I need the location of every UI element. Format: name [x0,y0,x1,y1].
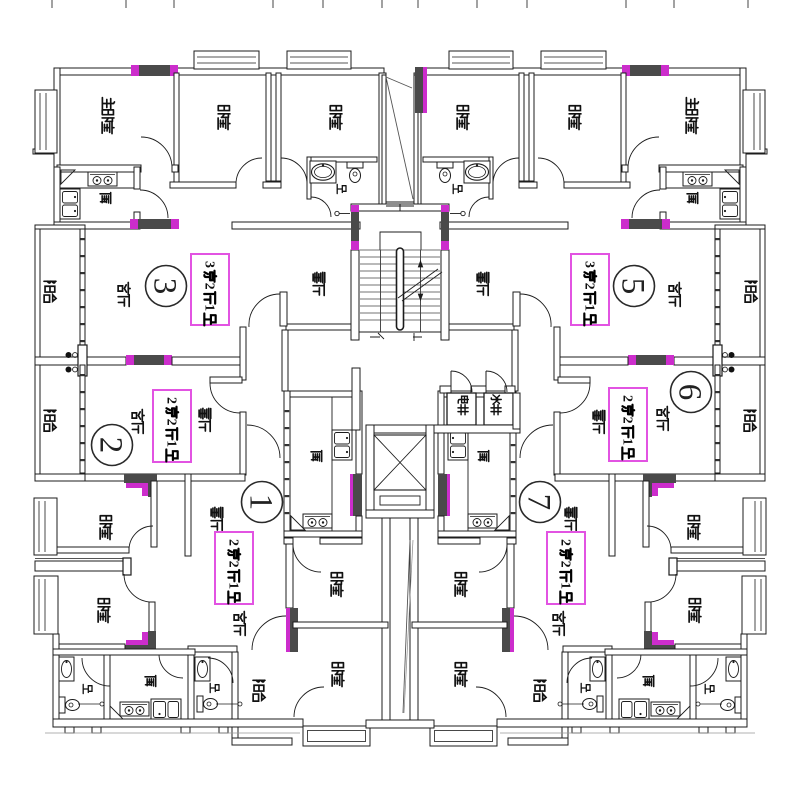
svg-text:3: 3 [147,278,183,295]
svg-text:2: 2 [164,397,179,404]
svg-text:2: 2 [558,561,573,568]
svg-text:1: 1 [243,494,279,511]
svg-text:2: 2 [226,561,241,568]
svg-text:1: 1 [620,438,635,445]
svg-text:1: 1 [226,582,241,589]
svg-text:1: 1 [558,582,573,589]
svg-text:2: 2 [620,395,635,402]
svg-text:3: 3 [202,261,217,268]
svg-text:6: 6 [672,384,708,401]
svg-text:7: 7 [521,494,557,511]
svg-text:3: 3 [582,261,597,268]
svg-text:2: 2 [202,283,217,290]
svg-text:1: 1 [164,440,179,447]
svg-text:2: 2 [582,283,597,290]
svg-text:1: 1 [202,304,217,311]
svg-text:2: 2 [93,437,129,454]
svg-text:2: 2 [226,539,241,546]
svg-text:1: 1 [582,304,597,311]
svg-text:2: 2 [558,539,573,546]
svg-text:5: 5 [615,278,651,295]
svg-text:2: 2 [620,417,635,424]
svg-text:2: 2 [164,419,179,426]
